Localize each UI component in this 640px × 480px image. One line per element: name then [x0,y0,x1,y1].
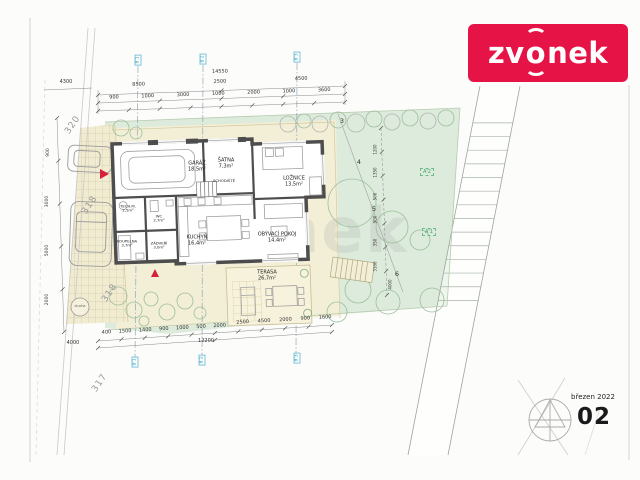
dim-bottom-left: 4000 [55,340,91,346]
drawing-page: { "logo": {"text": "zvonek", "part1": "z… [0,0,640,480]
sheet-number: 02 [577,404,611,430]
room-label-loznice: LOŽNICE13,5m² [283,176,305,188]
logo-text-left: zv [488,36,525,70]
tree [376,211,408,243]
dim-value: 2000 [279,316,292,323]
parked-car [67,145,112,173]
house-floorplan [112,134,328,268]
dim-value: 500 [196,324,206,331]
tree [144,292,158,306]
logo-text-o: o [526,36,546,70]
dim-value: 900 [300,315,310,322]
dim-value: 1200 [373,145,378,155]
dim-value: 2000 [247,89,260,95]
tree [297,114,311,128]
room-label-zadveri: ZÁDVEŘÍ3,0m² [151,242,168,251]
dim-value: 900 [372,216,377,224]
room-label-wc: WC2,7m² [153,215,164,224]
dim-garden-bottom: 4000 [385,272,395,296]
room-label-schodiste: SCHODIŠTĚ [213,179,235,183]
zvonek-logo: zvonek [468,24,628,82]
dim-value: 1000 [141,93,154,99]
dim-value: 2000 [213,322,226,329]
room-label-terasa: TERASA26,7m² [257,270,277,282]
drawing-date: březen 2022 [571,393,615,401]
north-arrow-compass [529,399,571,441]
axis-marker: B'1 [135,54,142,65]
tree [159,304,175,320]
tree [139,316,149,326]
dim-value: 2500 [213,79,226,85]
room-label-satna: ŠATNA7,3m² [218,158,235,170]
dim-value: 1600 [319,314,332,321]
dim-value: 1000 [212,91,225,97]
well-label: studna [75,305,86,309]
dim-value: 8500 [132,81,145,87]
tree [384,114,400,130]
boundary-point: 5 [372,205,376,213]
axis-marker: B'2 [199,354,206,365]
dim-value: 1000 [176,325,189,332]
axis-marker: B'3 [294,352,301,363]
tree [126,302,142,318]
dim-value: 4500 [295,76,308,82]
tree [194,307,206,319]
dim-value: 3600 [318,87,331,93]
room-label-kuchyn: KUCHYŇ16,4m² [187,235,208,247]
dim-value: 2000 [45,294,50,305]
dim-value: 500 [372,192,377,200]
dim-value: 5000 [45,245,50,256]
axis-marker: B'1 [132,356,139,367]
neighbour-strip [408,86,520,455]
dim-value: 900 [159,326,169,333]
dim-value: 3000 [45,196,50,207]
dim-value: 3100 [373,261,378,271]
room-label-koupelna: KOUPELNA3,7m² [117,240,137,249]
dim-value: 14550 [212,68,228,75]
tree [420,113,436,129]
logo-text-right: nek [547,36,608,70]
room-label-tech: TECH.M.2,5m² [120,205,136,214]
survey-marker-a1: A'1 [422,228,436,236]
dim-value: 1000 [282,88,295,94]
tree [402,110,418,126]
tree [328,179,376,227]
dim-value: 3000 [177,92,190,98]
dim-value: 350 [372,239,377,247]
stairs [196,181,217,197]
dim-value: 900 [46,148,51,157]
dim-left-chain: 900300050002000 [42,128,54,324]
boundary-point: 3 [340,117,344,125]
dim-value: 900 [109,94,119,100]
dim-value: 4300 [60,79,73,85]
dim-value: 4000 [67,340,80,346]
axis-marker: B'2 [200,53,207,64]
dim-bottom-overall: 12200 [186,338,226,344]
survey-marker-a2: A'2 [420,168,434,176]
dim-value: 4000 [388,279,393,289]
dim-value: 1350 [373,168,378,178]
entrance-arrow [100,169,109,179]
tree [312,116,328,132]
dim-value: 1400 [139,327,152,334]
boundary-point: 4 [357,158,361,166]
room-label-garaz: GARÁŽ18,5m² [188,161,206,173]
tree [347,114,365,132]
entrance-arrow [151,269,159,277]
tree [366,111,382,127]
dim-value: 2500 [236,319,249,326]
dim-top-left: 4300 [46,79,86,85]
tree [438,110,454,126]
boundary-point: 6 [395,270,399,278]
room-label-obyvaci-pokoj: OBÝVACÍ POKOJ14,4m² [258,232,297,244]
tree [177,293,193,309]
garden-steps [330,257,374,283]
dim-value: 400 [102,329,112,336]
dim-value: 1500 [119,328,132,335]
dim-value: 4500 [258,318,271,325]
axis-marker: B'3 [294,51,301,62]
dim-value: 12200 [198,338,214,344]
